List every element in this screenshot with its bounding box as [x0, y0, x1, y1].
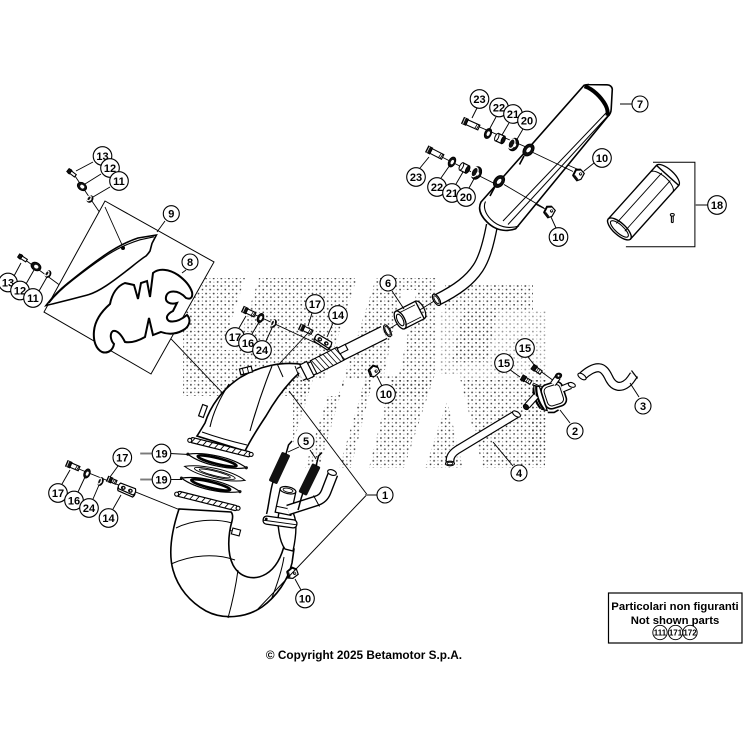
svg-text:7: 7	[637, 99, 643, 111]
svg-text:17: 17	[116, 453, 128, 465]
svg-text:24: 24	[83, 503, 96, 515]
svg-text:20: 20	[460, 192, 472, 204]
svg-text:8: 8	[187, 257, 193, 269]
svg-text:16: 16	[68, 496, 80, 508]
svg-text:15: 15	[498, 358, 510, 370]
svg-text:11: 11	[113, 176, 125, 188]
svg-text:20: 20	[521, 116, 533, 128]
svg-text:10: 10	[552, 232, 564, 244]
svg-text:2: 2	[572, 426, 578, 438]
svg-text:171: 171	[669, 629, 683, 638]
svg-text:3: 3	[640, 401, 646, 413]
svg-text:10: 10	[299, 594, 311, 606]
svg-text:© Copyright 2025 Betamotor S.p: © Copyright 2025 Betamotor S.p.A.	[266, 648, 462, 662]
svg-text:4: 4	[516, 468, 523, 480]
svg-text:18: 18	[711, 200, 723, 212]
svg-text:1: 1	[382, 490, 388, 502]
svg-text:14: 14	[102, 513, 115, 525]
svg-text:19: 19	[155, 475, 167, 487]
svg-text:172: 172	[683, 629, 697, 638]
svg-text:111: 111	[654, 629, 667, 638]
svg-text:14: 14	[332, 310, 345, 322]
svg-text:16: 16	[242, 338, 254, 350]
svg-text:23: 23	[410, 172, 422, 184]
svg-text:Particolari non figuranti: Particolari non figuranti	[611, 601, 738, 613]
svg-text:23: 23	[473, 94, 485, 106]
svg-text:17: 17	[52, 488, 64, 500]
svg-text:11: 11	[27, 293, 39, 305]
svg-text:17: 17	[309, 299, 321, 311]
svg-text:10: 10	[380, 389, 392, 401]
svg-text:19: 19	[155, 449, 167, 461]
svg-text:5: 5	[303, 436, 309, 448]
svg-text:10: 10	[596, 153, 608, 165]
svg-text:24: 24	[256, 345, 269, 357]
svg-text:9: 9	[168, 209, 174, 221]
svg-text:15: 15	[519, 343, 531, 355]
svg-text:6: 6	[385, 278, 391, 290]
svg-text:22: 22	[431, 182, 443, 194]
